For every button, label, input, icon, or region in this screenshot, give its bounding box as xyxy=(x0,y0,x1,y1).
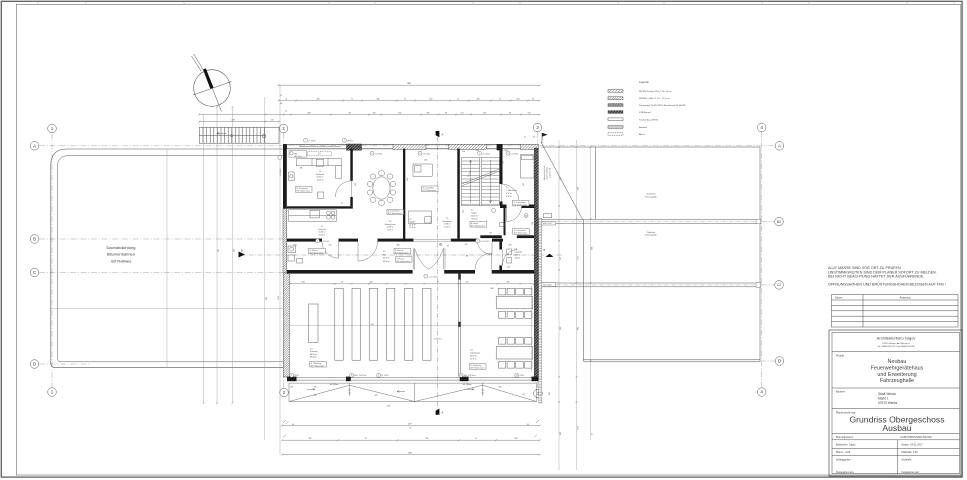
svg-text:2.6: 2.6 xyxy=(319,171,322,173)
svg-text:Teppich: Teppich xyxy=(409,222,415,224)
svg-text:d= 160mm: d= 160mm xyxy=(330,384,339,386)
svg-text:989 12cm: 989 12cm xyxy=(294,156,302,158)
svg-text:Besprechung: Besprechung xyxy=(385,224,396,226)
svg-text:88: 88 xyxy=(466,256,468,258)
svg-text:Jugendraum: Jugendraum xyxy=(470,353,480,355)
svg-text:2.2: 2.2 xyxy=(383,251,386,253)
svg-text:2: 2 xyxy=(282,126,285,131)
svg-text:12: 12 xyxy=(439,244,441,246)
svg-text:12: 12 xyxy=(285,111,287,113)
svg-text:LZ 17.5/50: LZ 17.5/50 xyxy=(480,241,489,243)
svg-text:87: 87 xyxy=(447,245,449,247)
svg-text:LZ 17,5/50: LZ 17,5/50 xyxy=(429,276,438,278)
svg-text:101: 101 xyxy=(465,244,468,246)
svg-text:860: 860 xyxy=(549,392,551,395)
svg-text:7: 7 xyxy=(305,140,306,142)
svg-text:BRü: 126/16cm: BRü: 126/16cm xyxy=(464,375,477,377)
svg-text:2.9: 2.9 xyxy=(446,218,449,220)
svg-text:1123: 1123 xyxy=(278,296,280,300)
svg-text:B: Trockenbau: B: Trockenbau xyxy=(297,188,309,190)
svg-text:BEI NICHT BEACHTUNG HAFTET DER: BEI NICHT BEACHTUNG HAFTET DER AUSFÜHREN… xyxy=(828,275,924,279)
svg-text:150: 150 xyxy=(462,151,465,153)
svg-text:203: 203 xyxy=(294,245,297,247)
svg-text:72: 72 xyxy=(351,99,353,101)
svg-text:11: 11 xyxy=(460,375,462,377)
svg-text:U: 40 Pers.: U: 40 Pers. xyxy=(433,339,442,341)
svg-text:2.9: 2.9 xyxy=(409,219,412,221)
svg-text:36: 36 xyxy=(532,99,534,101)
svg-text:590: 590 xyxy=(407,178,409,181)
svg-text:Sperrholzplatte: Sperrholzplatte xyxy=(546,167,549,179)
svg-text:167¹: 167¹ xyxy=(408,422,412,425)
svg-text:1: 1 xyxy=(51,126,54,131)
svg-text:57: 57 xyxy=(592,433,594,435)
svg-text:134: 134 xyxy=(271,120,274,122)
svg-text:2.5: 2.5 xyxy=(506,187,509,189)
svg-text:SSV 24/30: SSV 24/30 xyxy=(543,285,552,287)
svg-text:B: Beton: B: Beton xyxy=(471,222,478,225)
svg-text:Dachabdichtung: Dachabdichtung xyxy=(107,245,136,250)
svg-text:134¹: 134¹ xyxy=(483,111,487,114)
svg-text:6.22 m²: 6.22 m² xyxy=(506,192,512,195)
svg-text:Verwaltung: Verwaltung xyxy=(443,220,452,223)
svg-text:16.32 m²: 16.32 m² xyxy=(316,176,323,179)
svg-text:860: 860 xyxy=(266,297,268,300)
svg-text:2.4: 2.4 xyxy=(310,348,313,350)
svg-text:16.07 m: 16.07 m xyxy=(317,179,324,181)
svg-text:295: 295 xyxy=(523,183,525,186)
svg-text:476: 476 xyxy=(560,177,562,180)
svg-text:11: 11 xyxy=(351,375,353,377)
svg-text:Schulung: Schulung xyxy=(310,351,318,353)
svg-text:203: 203 xyxy=(302,282,305,284)
svg-text:Projekt:: Projekt: xyxy=(836,355,845,358)
svg-text:590: 590 xyxy=(355,183,357,186)
svg-text:4: 4 xyxy=(760,125,763,130)
svg-text:Treppe: Treppe xyxy=(471,213,477,215)
svg-text:BTI: Watercolour: BTI: Watercolour xyxy=(397,260,411,263)
svg-text:240: 240 xyxy=(507,282,510,284)
svg-text:LZ 24/50: LZ 24/50 xyxy=(381,375,388,377)
svg-text:64: 64 xyxy=(527,424,529,426)
svg-text:4: 4 xyxy=(760,390,763,395)
svg-text:1. Hilfe Raum: 1. Hilfe Raum xyxy=(506,190,517,192)
svg-text:MGF 20/50: MGF 20/50 xyxy=(543,223,552,225)
svg-text:Funkraum: Funkraum xyxy=(316,174,325,176)
svg-text:LZ 24/44: LZ 24/44 xyxy=(375,153,382,155)
svg-text:Fahrzeughalle: Fahrzeughalle xyxy=(880,378,914,384)
svg-text:BRü: 126/16cm: BRü: 126/16cm xyxy=(354,375,367,377)
svg-text:422: 422 xyxy=(375,395,378,397)
svg-text:137: 137 xyxy=(489,233,492,235)
svg-text:B2: B2 xyxy=(777,220,781,224)
svg-text:BTI: Watercolour: BTI: Watercolour xyxy=(311,365,325,368)
svg-text:1: 1 xyxy=(425,276,426,278)
svg-text:Auftraggeber:: Auftraggeber: xyxy=(836,459,851,462)
svg-text:88: 88 xyxy=(300,168,302,170)
svg-text:Bitumenbahnen: Bitumenbahnen xyxy=(107,252,135,257)
svg-text:460: 460 xyxy=(370,282,373,284)
svg-text:57¹: 57¹ xyxy=(475,437,478,440)
svg-text:C2: C2 xyxy=(777,283,781,287)
svg-text:LZ 24/44: LZ 24/44 xyxy=(308,140,315,142)
svg-text:90°: 90° xyxy=(314,387,317,389)
svg-text:LZ 24/44: LZ 24/44 xyxy=(482,153,489,155)
svg-text:1: 1 xyxy=(420,153,421,155)
svg-text:16.06 m²: 16.06 m² xyxy=(471,215,478,218)
svg-text:Blumenkörbe auf: Blumenkörbe auf xyxy=(544,166,546,180)
svg-text:47.37 m²: 47.37 m² xyxy=(383,257,390,260)
svg-text:548²: 548² xyxy=(371,323,375,326)
svg-text:302: 302 xyxy=(309,438,312,440)
svg-text:2.3: 2.3 xyxy=(470,350,473,352)
svg-text:96: 96 xyxy=(509,112,511,114)
svg-text:2.8: 2.8 xyxy=(389,221,392,223)
svg-text:Architekt:: Architekt: xyxy=(902,459,913,462)
svg-text:638: 638 xyxy=(592,247,594,250)
svg-text:Lavandet: Lavandet xyxy=(515,251,523,254)
svg-text:Markt 1: Markt 1 xyxy=(878,396,889,400)
svg-text:101: 101 xyxy=(329,245,332,247)
svg-text:W1/W4 Poroton Plan T 16: 24 cm: W1/W4 Poroton Plan T 16: 24 cm xyxy=(639,90,672,93)
svg-text:25: 25 xyxy=(524,137,526,139)
svg-text:Änderung: Änderung xyxy=(900,297,911,300)
svg-text:Abriss: Abriss xyxy=(639,133,646,136)
svg-text:302: 302 xyxy=(426,438,429,440)
svg-text:49.04 m: 49.04 m xyxy=(383,261,390,263)
svg-text:17.28 m: 17.28 m xyxy=(444,226,451,228)
svg-text:246: 246 xyxy=(317,99,320,101)
svg-text:368: 368 xyxy=(308,112,311,114)
svg-text:1: 1 xyxy=(317,241,318,243)
svg-text:und Erweiterung: und Erweiterung xyxy=(877,372,916,378)
svg-text:167: 167 xyxy=(560,257,562,260)
svg-text:W14: W14 xyxy=(505,150,508,152)
svg-text:Datum: Datum xyxy=(835,297,842,300)
svg-text:4.65 m: 4.65 m xyxy=(515,258,521,260)
svg-text:72: 72 xyxy=(499,99,501,101)
svg-text:17.28 m²: 17.28 m² xyxy=(443,223,450,226)
svg-text:ÖFFNUNGSHÖHEN UND BRÜSTUNGSHÖH: ÖFFNUNGSHÖHEN UND BRÜSTUNGSHÖHEN BEZOGEN… xyxy=(828,282,946,286)
svg-text:3: 3 xyxy=(536,125,539,130)
svg-text:326: 326 xyxy=(377,99,380,101)
svg-text:W14: W14 xyxy=(476,150,479,152)
svg-text:1: 1 xyxy=(51,390,54,395)
svg-text:freigegeben am:: freigegeben am: xyxy=(836,471,854,474)
svg-text:d= 160mm: d= 160mm xyxy=(463,384,472,386)
svg-text:2: 2 xyxy=(283,390,286,395)
svg-text:STB-Bauteil: STB-Bauteil xyxy=(639,111,651,114)
svg-text:24/50: 24/50 xyxy=(294,375,299,377)
svg-text:240: 240 xyxy=(499,386,502,388)
svg-text:152: 152 xyxy=(522,394,525,396)
svg-text:BTI: Watercolour: BTI: Watercolour xyxy=(514,203,528,206)
svg-text:14: 14 xyxy=(409,428,411,430)
svg-text:240: 240 xyxy=(509,245,512,247)
svg-text:1: 1 xyxy=(479,153,480,155)
svg-text:302: 302 xyxy=(218,249,220,252)
svg-text:Maßstab: 1:50: Maßstab: 1:50 xyxy=(902,451,919,454)
svg-text:BTI: Watercolour: BTI: Watercolour xyxy=(388,212,402,215)
svg-text:LZ 24/44: LZ 24/44 xyxy=(280,169,282,176)
svg-text:64: 64 xyxy=(292,424,294,426)
svg-text:72: 72 xyxy=(404,99,406,101)
svg-text:246: 246 xyxy=(477,99,480,101)
svg-text:88.34 m: 88.34 m xyxy=(310,357,317,359)
svg-text:2: 2 xyxy=(344,140,345,142)
svg-text:Planungsstand:: Planungsstand: xyxy=(836,436,854,439)
svg-text:36.63 m²: 36.63 m² xyxy=(470,355,477,358)
svg-text:BTI: Watercolour: BTI: Watercolour xyxy=(423,189,437,192)
svg-text:Trennwand TS-312 KPS: Brandwan: Trennwand TS-312 KPS: Brandwand 30-30 MW xyxy=(639,104,687,107)
svg-text:164¹: 164¹ xyxy=(424,159,428,162)
svg-text:4.1: 4.1 xyxy=(471,210,474,212)
svg-text:BTI: Watercolour: BTI: Watercolour xyxy=(310,251,324,254)
svg-text:380: 380 xyxy=(578,187,580,190)
svg-text:07570 Werda, Am Wasser 8: 07570 Werda, Am Wasser 8 xyxy=(882,342,910,345)
svg-text:90: 90 xyxy=(533,137,535,139)
svg-text:B: Glattbelag: B: Glattbelag xyxy=(471,364,481,367)
svg-text:134¹: 134¹ xyxy=(398,111,402,114)
svg-text:1123: 1123 xyxy=(578,426,580,430)
svg-text:Feuerwehrgerätehaus: Feuerwehrgerätehaus xyxy=(871,365,924,371)
svg-text:Architekturbüro Gigov: Architekturbüro Gigov xyxy=(877,336,916,341)
svg-text:B: Glattbelag: B: Glattbelag xyxy=(311,362,321,365)
svg-text:mit Rollkies: mit Rollkies xyxy=(111,258,131,263)
svg-text:2: 2 xyxy=(508,153,509,155)
svg-text:17.28 m²: 17.28 m² xyxy=(386,226,393,229)
svg-text:B: Trockenbau: B: Trockenbau xyxy=(423,188,435,190)
svg-text:Bauherr:: Bauherr: xyxy=(836,391,846,394)
svg-text:2.0: 2.0 xyxy=(515,249,518,251)
svg-text:LZ 24/44: LZ 24/44 xyxy=(511,153,518,155)
svg-text:168: 168 xyxy=(532,222,534,225)
svg-text:freigegeben am:: freigegeben am: xyxy=(902,471,920,474)
svg-text:1: 1 xyxy=(372,153,373,155)
svg-text:LZ 24/44: LZ 24/44 xyxy=(423,153,430,155)
svg-text:283: 283 xyxy=(373,112,376,114)
svg-text:750: 750 xyxy=(290,386,293,388)
svg-text:57¹: 57¹ xyxy=(365,437,368,440)
svg-text:13: 13 xyxy=(516,375,518,377)
svg-text:76: 76 xyxy=(341,282,343,284)
svg-text:124: 124 xyxy=(528,112,531,114)
svg-text:und Holz-UK: und Holz-UK xyxy=(549,167,551,178)
svg-text:Neubau: Neubau xyxy=(888,359,907,365)
svg-text:Fahrzeughalle: Fahrzeughalle xyxy=(645,235,656,237)
svg-text:Plannr.: 4-03: Plannr.: 4-03 xyxy=(836,451,851,454)
svg-text:96¹: 96¹ xyxy=(349,111,352,114)
svg-text:Oberkante: Oberkante xyxy=(647,231,655,234)
svg-text:BTI: Watercolour: BTI: Watercolour xyxy=(471,225,485,228)
svg-text:Bestand: Bestand xyxy=(639,126,648,129)
svg-text:10.30 m: 10.30 m xyxy=(319,234,326,236)
svg-text:4.47 m²: 4.47 m² xyxy=(515,254,521,257)
svg-text:BTI: Watercolour: BTI: Watercolour xyxy=(395,251,409,254)
svg-text:16.81 m: 16.81 m xyxy=(471,219,478,221)
svg-text:125: 125 xyxy=(463,210,465,213)
svg-text:12: 12 xyxy=(280,95,282,97)
svg-text:386: 386 xyxy=(397,245,400,247)
svg-text:Teeküche: Teeküche xyxy=(318,229,326,231)
svg-text:17: 17 xyxy=(457,99,459,101)
svg-text:302: 302 xyxy=(515,438,518,440)
svg-text:283: 283 xyxy=(427,112,430,114)
svg-text:17.11 m: 17.11 m xyxy=(387,229,394,231)
svg-text:12: 12 xyxy=(285,99,287,101)
svg-text:96: 96 xyxy=(445,112,447,114)
svg-text:101: 101 xyxy=(466,282,469,284)
svg-text:1 10: 1 10 xyxy=(578,257,580,261)
svg-text:240: 240 xyxy=(314,395,317,397)
svg-text:Trockenbau, MGVS: Trockenbau, MGVS xyxy=(639,118,659,121)
svg-text:LZ 17.5/50: LZ 17.5/50 xyxy=(320,241,329,243)
svg-text:10.28 m²: 10.28 m² xyxy=(318,231,325,234)
svg-text:24/61.5: 24/61.5 xyxy=(347,140,353,142)
svg-text:Fahrzeughalle: Fahrzeughalle xyxy=(645,196,656,198)
svg-text:Bearbeiter: Gigov: Bearbeiter: Gigov xyxy=(836,443,856,446)
svg-text:250: 250 xyxy=(503,161,505,164)
svg-text:BTI: Watercolour: BTI: Watercolour xyxy=(297,190,311,193)
svg-text:Tel. 036607/41070, Fax 036607/: Tel. 036607/41070, Fax 036607/41059 xyxy=(877,346,915,348)
svg-text:242: 242 xyxy=(517,99,520,101)
svg-text:Ausbau: Ausbau xyxy=(882,423,911,433)
svg-text:87: 87 xyxy=(437,282,439,284)
svg-text:1397: 1397 xyxy=(387,405,391,407)
svg-text:Flur: Flur xyxy=(383,254,386,256)
svg-text:37.11 m: 37.11 m xyxy=(470,359,477,361)
svg-text:AUSFÜHRUNGSPLANUNG: AUSFÜHRUNGSPLANUNG xyxy=(900,436,931,439)
svg-text:Dachstand: Dachstand xyxy=(647,193,656,196)
svg-text:17.20 m²: 17.20 m² xyxy=(409,223,416,226)
svg-text:88.24 m²: 88.24 m² xyxy=(310,353,317,356)
svg-text:5: 5 xyxy=(378,375,379,377)
svg-text:24/50: 24/50 xyxy=(519,375,524,377)
svg-text:17.20 m: 17.20 m xyxy=(409,227,416,229)
svg-text:101: 101 xyxy=(507,267,510,269)
svg-text:Datum: 04.01.2017: Datum: 04.01.2017 xyxy=(902,443,924,446)
svg-text:326: 326 xyxy=(234,249,236,252)
svg-text:383: 383 xyxy=(560,327,562,330)
svg-text:W5/W14_GiRu+T 1.0 - 17,5 cm: W5/W14_GiRu+T 1.0 - 17,5 cm xyxy=(639,98,670,100)
svg-text:24: 24 xyxy=(280,103,282,105)
svg-text:121: 121 xyxy=(461,112,464,114)
svg-text:1: 1 xyxy=(477,241,478,243)
svg-text:Stadt Werda: Stadt Werda xyxy=(878,392,896,396)
svg-text:07570 Werda: 07570 Werda xyxy=(878,401,897,405)
svg-text:1: 1 xyxy=(291,375,292,377)
svg-text:267: 267 xyxy=(430,99,433,101)
svg-text:37: 37 xyxy=(341,203,343,205)
svg-text:BTI: Watercolour: BTI: Watercolour xyxy=(514,232,528,235)
svg-text:Legende: Legende xyxy=(639,81,649,84)
svg-text:484: 484 xyxy=(491,288,494,290)
svg-text:2.7: 2.7 xyxy=(321,226,324,228)
svg-text:860: 860 xyxy=(578,327,580,330)
svg-text:302: 302 xyxy=(560,432,562,435)
svg-text:B: B xyxy=(33,237,36,242)
svg-text:BTI: Watercolour: BTI: Watercolour xyxy=(471,367,485,370)
svg-text:6.40 m: 6.40 m xyxy=(506,196,512,198)
